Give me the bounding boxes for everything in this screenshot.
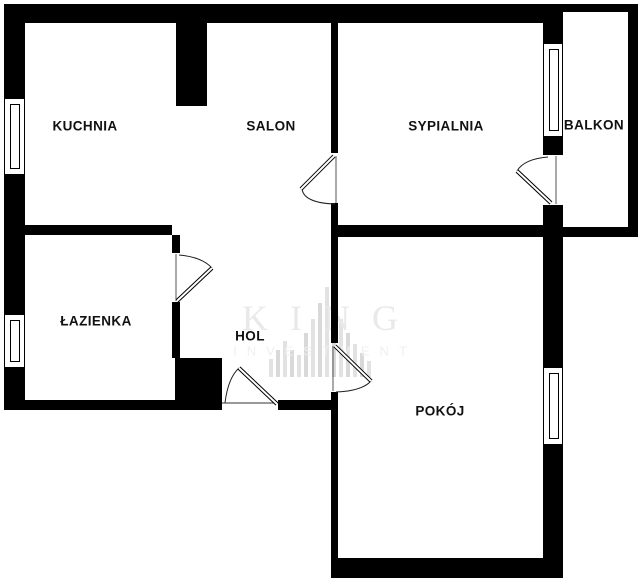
room-label-sypialnia: SYPIALNIA [408,119,484,134]
room-label-kuchnia: KUCHNIA [52,119,117,134]
door-symbols [0,0,640,584]
room-label-hol: HOL [235,329,265,344]
door-salon-sypialnia [301,156,336,204]
room-label-lazienka: ŁAZIENKA [60,314,131,329]
door-sypialnia-balkon [517,156,556,204]
room-label-balkon: BALKON [564,118,624,133]
floor-plan: KING INVESTMENT [0,0,640,584]
room-label-pokoj: POKÓJ [415,404,464,419]
door-entrance [222,368,278,404]
room-label-salon: SALON [246,119,295,134]
door-lazienka-hol [176,254,212,301]
door-hol-pokoj [333,346,371,392]
